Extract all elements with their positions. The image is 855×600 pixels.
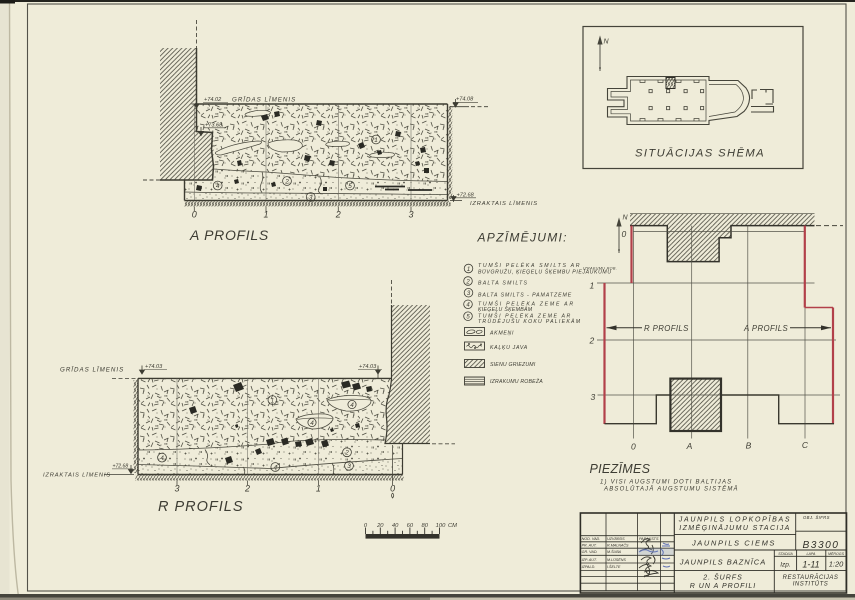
svg-text:1: 1	[467, 267, 470, 273]
svg-text:1:20: 1:20	[829, 560, 844, 569]
svg-text:IZRAKUMU ROBEŽA: IZRAKUMU ROBEŽA	[490, 377, 543, 385]
svg-text:1: 1	[316, 484, 321, 494]
svg-text:BALTA SMILTS - PAMATZEME: BALTA SMILTS - PAMATZEME	[478, 293, 572, 299]
svg-text:3: 3	[309, 194, 313, 201]
svg-text:100: 100	[436, 523, 446, 529]
svg-text:2: 2	[589, 336, 595, 346]
svg-text:APZĪMĒJUMI:: APZĪMĒJUMI:	[477, 231, 568, 245]
svg-text:3: 3	[174, 484, 179, 494]
svg-text:STADIJA: STADIJA	[778, 552, 793, 556]
svg-text:Izp.: Izp.	[780, 562, 791, 569]
svg-text:3: 3	[591, 392, 596, 402]
svg-text:GRĪDAS LĪMENIS: GRĪDAS LĪMENIS	[60, 367, 124, 374]
svg-text:2: 2	[344, 450, 349, 457]
svg-text:60: 60	[407, 523, 414, 529]
svg-text:JAUNPILS LOPKOPĪBAS: JAUNPILS LOPKOPĪBAS	[678, 516, 791, 524]
svg-text:1: 1	[374, 137, 378, 144]
svg-text:0: 0	[192, 210, 197, 220]
svg-text:1: 1	[590, 281, 595, 291]
svg-text:IZMĒĢINĀJUMU STACIJA: IZMĒĢINĀJUMU STACIJA	[679, 524, 790, 532]
svg-text:A PROFILS: A PROFILS	[743, 324, 788, 333]
svg-text:SITUĀCIJAS SHĒMA: SITUĀCIJAS SHĒMA	[635, 148, 765, 160]
svg-text:0: 0	[631, 442, 636, 452]
svg-text:NOD. VAD.: NOD. VAD.	[582, 537, 601, 541]
svg-text:1) VISI AUGSTUMI DOTI BALTIJAS: 1) VISI AUGSTUMI DOTI BALTIJAS	[600, 480, 732, 486]
svg-text:M.LŪSĒNS: M.LŪSĒNS	[607, 558, 626, 562]
svg-text:2. ŠURFS: 2. ŠURFS	[702, 573, 743, 582]
svg-text:2: 2	[465, 279, 470, 285]
svg-text:1: 1	[263, 210, 268, 220]
svg-text:PR. AUT.: PR. AUT.	[582, 543, 597, 547]
svg-text:R PROFILS: R PROFILS	[644, 324, 689, 333]
svg-text:JAUNPILS CIEMS: JAUNPILS CIEMS	[691, 539, 776, 548]
svg-text:2: 2	[244, 484, 250, 494]
svg-text:ĶIEĢEĻU ŠĶEMBĀM: ĶIEĢEĻU ŠĶEMBĀM	[478, 306, 533, 313]
svg-text:+74.03: +74.03	[359, 364, 377, 370]
svg-text:4: 4	[216, 183, 220, 190]
svg-text:CM: CM	[448, 523, 457, 529]
svg-text:A PROFILS: A PROFILS	[189, 227, 269, 243]
svg-text:4: 4	[350, 402, 354, 409]
svg-text:RESTAURĀCIJAS: RESTAURĀCIJAS	[783, 574, 839, 581]
svg-text:+74.08: +74.08	[456, 97, 474, 103]
svg-text:+72.68: +72.68	[113, 463, 129, 469]
svg-text:SIENU GRIEZUMI: SIENU GRIEZUMI	[490, 362, 536, 368]
svg-text:ABSOLŪTAJĀ AUGSTUMU SISTĒMĀ: ABSOLŪTAJĀ AUGSTUMU SISTĒMĀ	[603, 486, 739, 493]
svg-text:4: 4	[310, 420, 314, 427]
svg-text:40: 40	[392, 523, 399, 529]
svg-text:LAPA: LAPA	[807, 552, 817, 556]
svg-text:80: 80	[421, 523, 428, 529]
svg-text:INSTITŪTS: INSTITŪTS	[793, 581, 829, 588]
svg-text:B: B	[746, 440, 752, 450]
svg-text:M.ŠUBA: M.ŠUBA	[607, 549, 622, 554]
svg-text:+74.03: +74.03	[145, 364, 163, 370]
svg-text:IZRAKTAIS LĪMENIS: IZRAKTAIS LĪMENIS	[470, 200, 538, 207]
svg-text:4: 4	[160, 455, 164, 462]
svg-text:IZP. AUT.: IZP. AUT.	[582, 558, 597, 562]
svg-text:UZVĀRDS: UZVĀRDS	[607, 537, 625, 541]
svg-text:GRĪDAS LĪMENIS: GRĪDAS LĪMENIS	[232, 97, 296, 104]
svg-text:TRŪDĒJUŠU KOKU PALIEKĀM: TRŪDĒJUŠU KOKU PALIEKĀM	[478, 318, 581, 325]
svg-text:TUMŠI PELĒKA SMILTS AR: TUMŠI PELĒKA SMILTS AR	[478, 262, 581, 269]
svg-text:4: 4	[274, 464, 278, 471]
svg-text:AKMEŅI: AKMEŅI	[489, 330, 514, 336]
svg-text:A: A	[686, 441, 693, 451]
svg-text:GR. VAD.: GR. VAD.	[582, 550, 598, 554]
svg-text:2: 2	[335, 210, 341, 220]
svg-text:IZRAKUMU ROB.: IZRAKUMU ROB.	[583, 267, 617, 271]
svg-text:+74.02: +74.02	[204, 97, 222, 103]
svg-text:IZRAKTAIS LĪMENIS: IZRAKTAIS LĪMENIS	[43, 472, 111, 479]
svg-text:1: 1	[271, 397, 275, 404]
svg-text:3: 3	[408, 210, 413, 220]
svg-text:1-11: 1-11	[802, 560, 819, 570]
svg-text:BALTA SMILTS: BALTA SMILTS	[478, 281, 528, 287]
svg-text:0: 0	[622, 229, 627, 239]
svg-text:2: 2	[284, 178, 289, 185]
svg-text:I.ŠELTE: I.ŠELTE	[607, 564, 621, 569]
svg-text:3: 3	[347, 463, 351, 470]
svg-text:PIEZĪMES: PIEZĪMES	[590, 462, 651, 476]
svg-text:IZPALD.: IZPALD.	[582, 565, 596, 569]
svg-text:+72.68: +72.68	[457, 192, 475, 198]
svg-text:20: 20	[376, 523, 384, 529]
svg-text:5: 5	[348, 183, 352, 190]
svg-text:0: 0	[390, 484, 395, 494]
svg-text:OBJ. ŠIFRS: OBJ. ŠIFRS	[803, 515, 830, 520]
svg-text:+73.68: +73.68	[205, 122, 223, 128]
svg-text:KAĻĶU JAVA: KAĻĶU JAVA	[490, 345, 528, 351]
svg-text:C: C	[802, 440, 809, 450]
svg-text:JAUNPILS BAZNĪCA: JAUNPILS BAZNĪCA	[679, 558, 766, 567]
svg-text:R.MALNAČS: R.MALNAČS	[607, 542, 629, 547]
svg-text:R UN A PROFILI: R UN A PROFILI	[690, 583, 756, 590]
svg-text:R PROFILS: R PROFILS	[158, 499, 244, 515]
svg-text:MĒROGS: MĒROGS	[828, 552, 845, 556]
svg-text:B3300: B3300	[803, 540, 840, 551]
